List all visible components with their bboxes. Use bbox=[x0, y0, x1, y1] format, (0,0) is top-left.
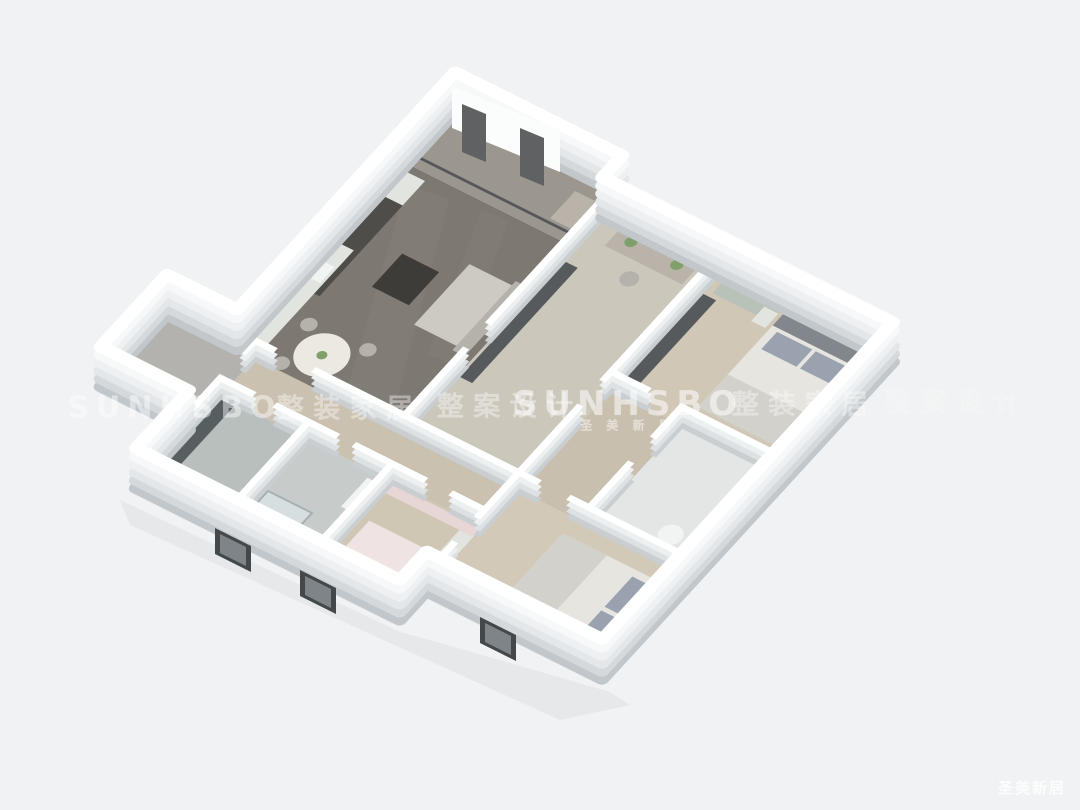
floorplan-render: SUNHSBO 整 装 家 居 整 案 设 计 SUNHSBO 圣 美 新 居 … bbox=[0, 0, 1080, 810]
apartment-floorplan bbox=[0, 0, 1080, 810]
curtain-panel bbox=[462, 104, 486, 162]
curtain-panel bbox=[520, 128, 544, 186]
